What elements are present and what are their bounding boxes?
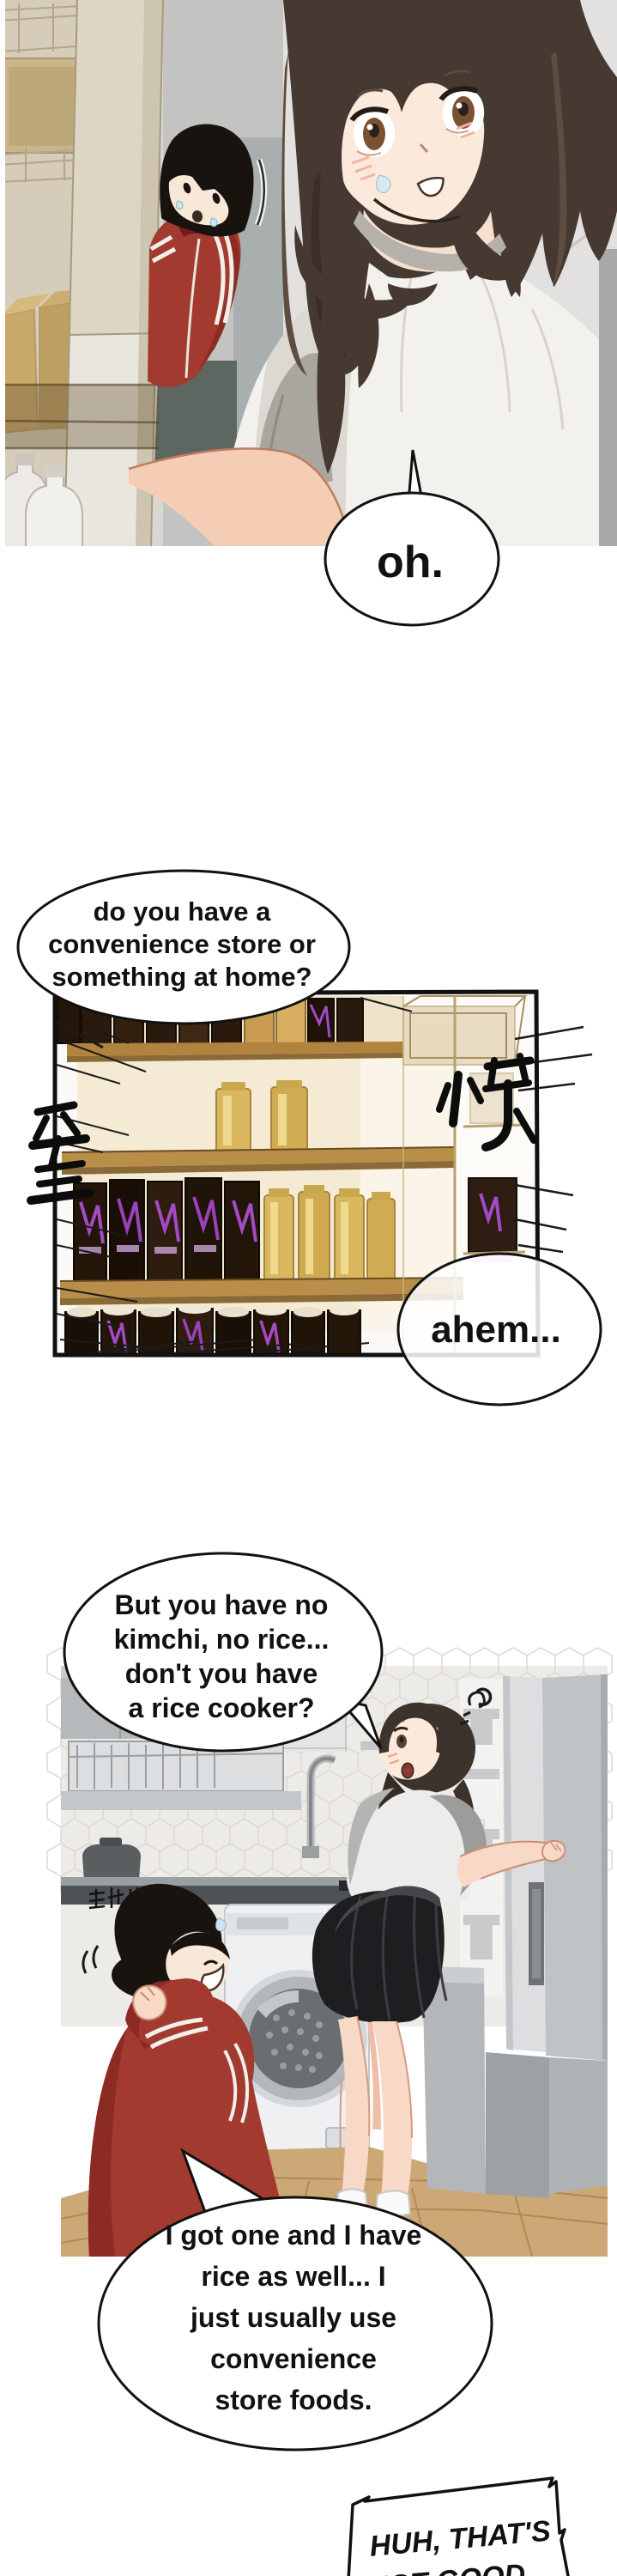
svg-text:a rice cooker?: a rice cooker? [129, 1692, 315, 1723]
svg-text:I got one and I have: I got one and I have [166, 2220, 422, 2251]
svg-text:something at home?: something at home? [51, 962, 312, 992]
svg-text:kimchi, no rice...: kimchi, no rice... [114, 1624, 330, 1655]
svg-text:convenience store or: convenience store or [48, 929, 316, 959]
svg-text:just usually use: just usually use [190, 2302, 396, 2333]
svg-text:store foods.: store foods. [215, 2385, 372, 2415]
svg-text:do you have a: do you have a [94, 896, 271, 927]
svg-text:convenience: convenience [210, 2343, 377, 2374]
svg-text:rice as well... I: rice as well... I [201, 2261, 385, 2292]
svg-text:But you have no: But you have no [115, 1589, 329, 1620]
svg-text:ahem...: ahem... [431, 1309, 561, 1351]
svg-text:don't you have: don't you have [125, 1658, 318, 1689]
svg-text:oh.: oh. [377, 538, 444, 587]
